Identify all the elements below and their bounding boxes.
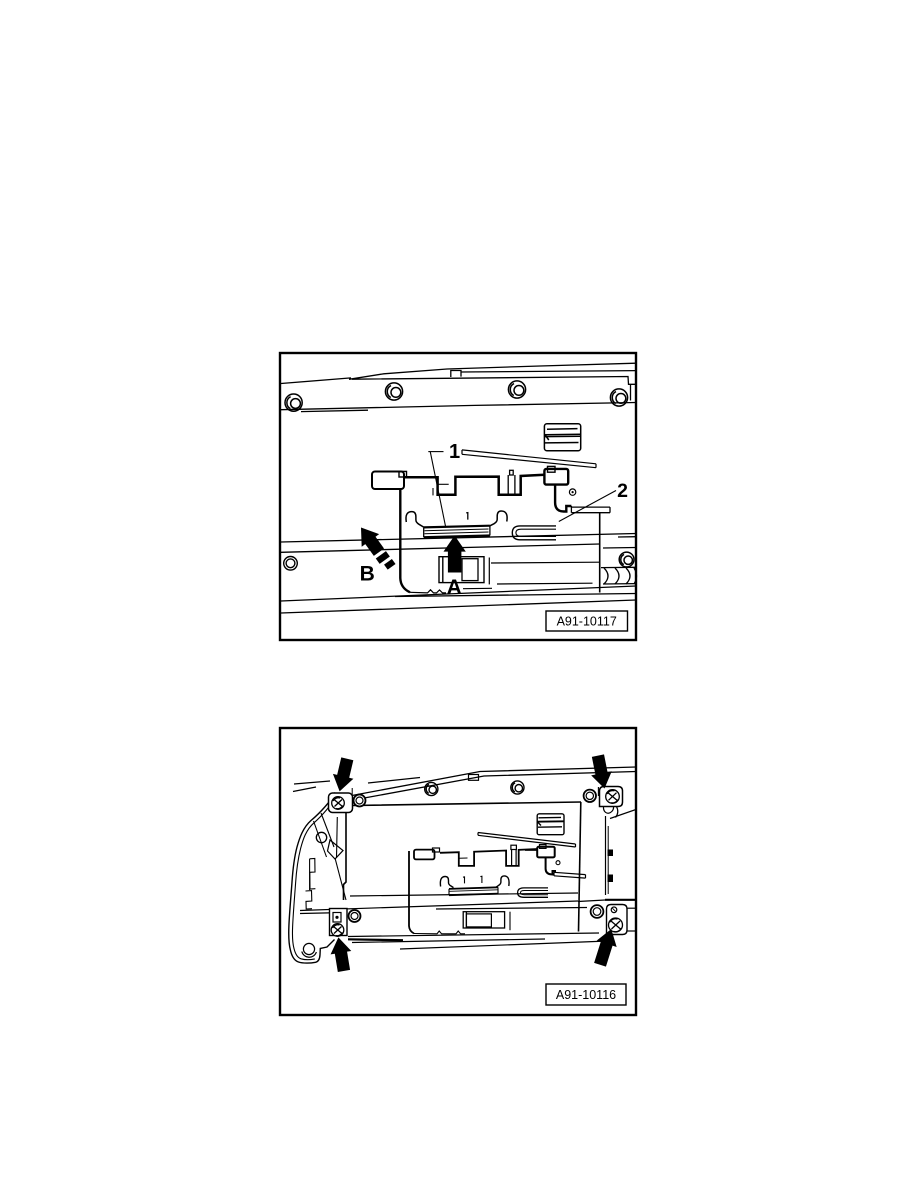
svg-text:1: 1: [449, 441, 460, 463]
svg-text:2: 2: [617, 480, 628, 502]
svg-text:A: A: [447, 576, 462, 599]
svg-text:A91-10116: A91-10116: [556, 988, 616, 1002]
svg-text:A91-10117: A91-10117: [557, 615, 617, 629]
svg-text:B: B: [360, 562, 375, 585]
